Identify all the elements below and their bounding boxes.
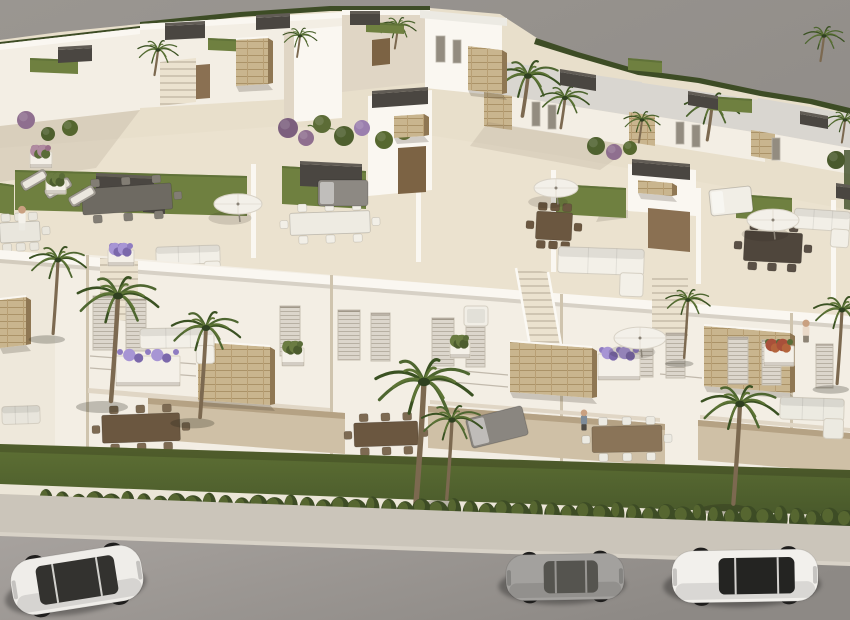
flower-planter <box>450 335 470 358</box>
stair-tower-side <box>284 30 294 126</box>
window <box>548 105 556 129</box>
garden-shrub <box>278 118 298 138</box>
flower-planter <box>282 341 304 366</box>
person <box>581 410 588 431</box>
stone-accent <box>629 112 655 146</box>
stairwell-recess <box>648 208 690 252</box>
garden-shrub <box>606 144 622 160</box>
flower-planter <box>46 173 66 194</box>
roof-utility-box <box>350 11 380 25</box>
armchair <box>464 306 488 326</box>
stone-accent <box>751 130 775 160</box>
white-sedan-car <box>663 546 822 609</box>
people-rooftop <box>18 206 26 231</box>
unit-divider <box>86 255 89 457</box>
flower-planter <box>108 243 134 266</box>
roof-utility-box <box>58 45 92 63</box>
stone-clad-planter-box <box>510 340 597 404</box>
sofa <box>2 405 41 424</box>
exterior-stairs <box>160 58 196 106</box>
garden-shrub <box>587 137 605 155</box>
daybed <box>318 180 368 206</box>
garden-shrub <box>62 120 78 136</box>
stone-clad-planter-box <box>394 112 429 144</box>
window <box>692 125 700 147</box>
garden-shrub <box>334 126 354 146</box>
garden-shrub <box>17 111 35 129</box>
louvered-window <box>371 313 390 361</box>
silver-coupe-car <box>498 550 626 606</box>
garden-shrub <box>623 141 637 155</box>
garden-shrub <box>41 127 55 141</box>
patio-recess <box>372 38 390 66</box>
garden-shrub <box>298 130 314 146</box>
stone-clad-planter-box <box>638 178 677 202</box>
person <box>18 206 26 231</box>
louvered-window <box>728 337 748 384</box>
garden-shrub <box>354 120 370 136</box>
terrace-divider-wall <box>696 188 701 284</box>
flower-planter <box>30 145 52 168</box>
window <box>453 40 461 63</box>
daybed <box>709 186 753 216</box>
person <box>802 320 809 343</box>
louvered-window <box>338 310 360 360</box>
roof-utility-box <box>165 21 205 40</box>
louvered-window <box>666 333 685 378</box>
stairwell-recess <box>398 146 426 194</box>
louvered-window <box>816 344 833 388</box>
garden-shrub <box>375 131 393 149</box>
roof-utility-box <box>836 183 850 200</box>
stair-tower <box>294 26 342 122</box>
architectural-render <box>0 0 850 620</box>
flower-planter <box>764 339 794 366</box>
window <box>676 122 684 144</box>
window <box>532 102 540 126</box>
lawn-patch <box>0 183 14 215</box>
roof-utility-box <box>256 13 290 30</box>
window <box>436 36 445 62</box>
garden-shrub <box>313 115 331 133</box>
stone-clad-planter-box <box>236 36 273 92</box>
stone-clad-planter-box <box>468 44 507 100</box>
garden-shrub <box>827 151 845 169</box>
window <box>772 138 780 160</box>
